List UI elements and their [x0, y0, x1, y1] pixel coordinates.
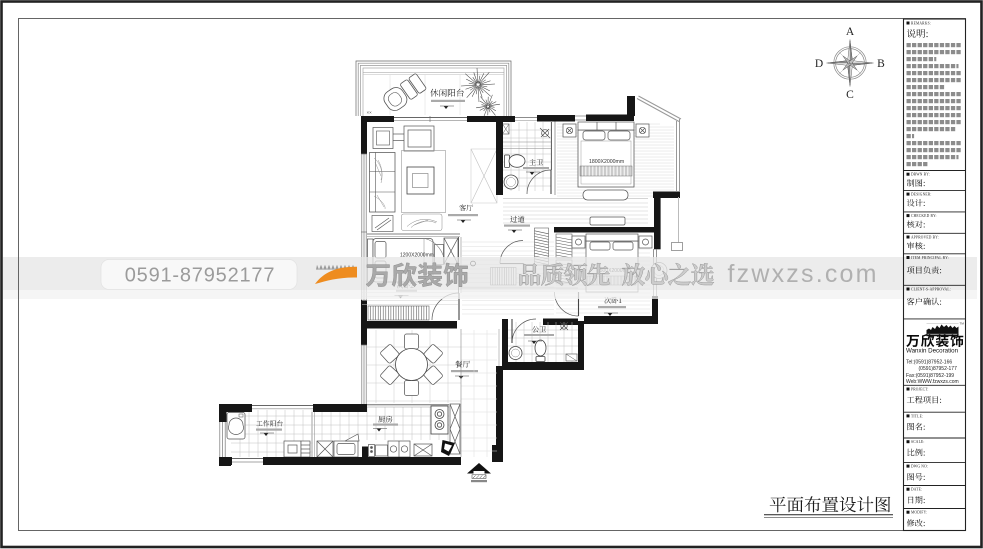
svg-text:fzwxzs.com: fzwxzs.com	[728, 260, 879, 288]
svg-text:TM: TM	[960, 322, 965, 326]
svg-text:DRWN BY:: DRWN BY:	[911, 173, 930, 177]
svg-text:D: D	[815, 58, 823, 70]
svg-text:CHECKED BY:: CHECKED BY:	[911, 214, 937, 218]
svg-text:(0591)87952-177: (0591)87952-177	[919, 366, 958, 372]
svg-text:SCALE:: SCALE:	[911, 440, 925, 444]
svg-text:DATE:: DATE:	[911, 488, 922, 492]
svg-text:0591-87952177: 0591-87952177	[125, 265, 276, 287]
svg-text:Tel:(0591)87952-166: Tel:(0591)87952-166	[906, 360, 952, 366]
svg-text:Web:WWW.fzwxzs.com: Web:WWW.fzwxzs.com	[906, 379, 959, 385]
svg-text:A: A	[846, 26, 855, 38]
svg-text:REMARKS:: REMARKS:	[911, 22, 931, 26]
svg-text:ITEM PRINCIPAL BY:: ITEM PRINCIPAL BY:	[911, 256, 949, 260]
svg-text:PROJECT:: PROJECT:	[911, 388, 929, 392]
svg-text:DWG NO:: DWG NO:	[911, 465, 928, 469]
svg-text:B: B	[877, 58, 885, 70]
svg-text:APPROVED BY:: APPROVED BY:	[911, 236, 939, 240]
svg-text:CLIENT-S-APPROVAL:: CLIENT-S-APPROVAL:	[911, 288, 951, 292]
svg-text:C: C	[846, 89, 854, 101]
svg-text:DESIGNER:: DESIGNER:	[911, 193, 932, 197]
svg-text:TITLE:: TITLE:	[911, 414, 923, 418]
svg-text:××: ××	[367, 110, 373, 115]
svg-text:1800X2000mm: 1800X2000mm	[589, 159, 624, 165]
svg-text:Wanxin Decoration: Wanxin Decoration	[906, 348, 959, 355]
svg-text:MODIFY:: MODIFY:	[911, 511, 927, 515]
